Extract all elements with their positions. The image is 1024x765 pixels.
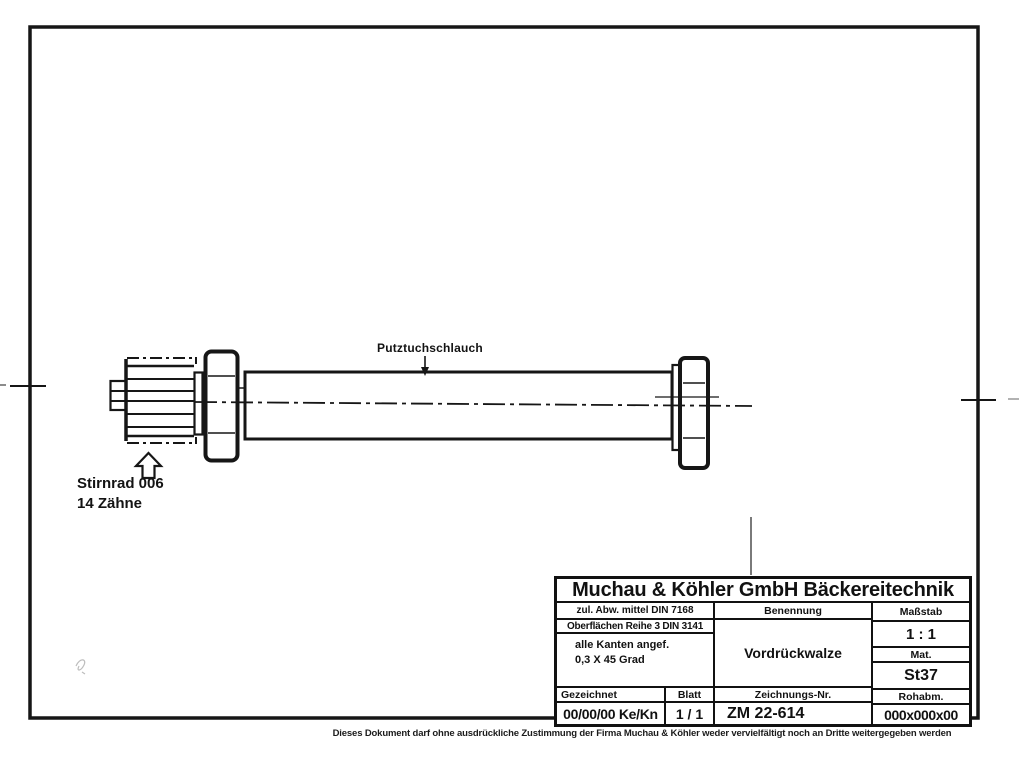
right-bearing-block	[673, 358, 709, 468]
zeichnungsnr-value: ZM 22-614	[715, 703, 873, 724]
gezeichnet-label: Gezeichnet	[557, 688, 666, 703]
gear-label-line2: 14 Zähne	[77, 494, 164, 514]
blatt-label: Blatt	[666, 688, 715, 703]
copyright-disclaimer: Dieses Dokument darf ohne ausdrückliche …	[320, 728, 964, 739]
tolerance-note: zul. Abw. mittel DIN 7168	[557, 603, 715, 620]
shaft-stub	[111, 381, 127, 410]
left-flange	[195, 373, 203, 435]
zeichnungsnr-label: Zeichnungs-Nr.	[715, 688, 873, 703]
benennung-label: Benennung	[715, 603, 873, 620]
mat-label: Mat.	[873, 648, 969, 663]
company-title: Muchau & Köhler GmbH Bäckereitechnik	[557, 579, 969, 603]
benennung-value: Vordrückwalze	[715, 620, 873, 688]
scan-smudge	[76, 660, 85, 674]
surface-note: Oberflächen Reihe 3 DIN 3141	[557, 620, 715, 634]
edge-note-line1: alle Kanten angef.	[575, 638, 669, 653]
massstab-label: Maßstab	[873, 603, 969, 622]
gear-stirnrad	[110, 357, 197, 444]
rohabm-label: Rohabm.	[873, 690, 969, 705]
blatt-value: 1 / 1	[666, 703, 715, 724]
edge-note: alle Kanten angef. 0,3 X 45 Grad	[557, 634, 715, 688]
mat-value: St37	[873, 663, 969, 690]
edge-note-line2: 0,3 X 45 Grad	[575, 653, 645, 668]
rohabm-value: 000x000x00	[873, 705, 969, 724]
drawing-sheet: Putztuchschlauch Stirnrad 006 14 Zähne M…	[0, 0, 1024, 765]
part-label-putztuchschlauch: Putztuchschlauch	[377, 341, 483, 355]
gear-annotation: Stirnrad 006 14 Zähne	[77, 474, 164, 514]
gezeichnet-value: 00/00/00 Ke/Kn	[557, 703, 666, 724]
gear-label-line1: Stirnrad 006	[77, 474, 164, 494]
scan-artifact-line	[750, 517, 752, 575]
massstab-value: 1 : 1	[873, 622, 969, 648]
